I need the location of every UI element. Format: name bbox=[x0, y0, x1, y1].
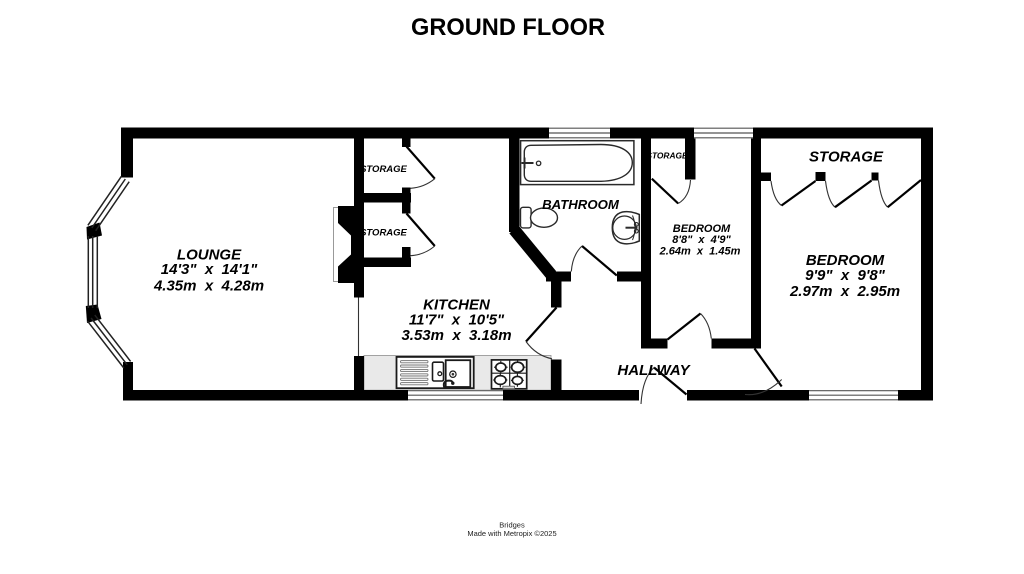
svg-text:BATHROOM: BATHROOM bbox=[542, 197, 620, 212]
svg-text:4.35m x 4.28m: 4.35m x 4.28m bbox=[153, 277, 264, 294]
svg-text:GROUND FLOOR: GROUND FLOOR bbox=[411, 15, 605, 41]
svg-text:3.53m x 3.18m: 3.53m x 3.18m bbox=[401, 327, 511, 344]
svg-text:HALLWAY: HALLWAY bbox=[617, 362, 691, 379]
svg-text:Made with Metropix ©2025: Made with Metropix ©2025 bbox=[467, 529, 556, 538]
svg-text:11'7" x 10'5": 11'7" x 10'5" bbox=[409, 311, 505, 328]
svg-text:8'8" x 4'9": 8'8" x 4'9" bbox=[672, 234, 731, 246]
svg-text:2.64m x 1.45m: 2.64m x 1.45m bbox=[659, 245, 741, 257]
svg-text:STORAGE: STORAGE bbox=[360, 227, 407, 238]
svg-text:14'3" x 14'1": 14'3" x 14'1" bbox=[161, 261, 258, 278]
svg-text:STORAGE: STORAGE bbox=[360, 164, 407, 175]
svg-text:STORAGE: STORAGE bbox=[809, 149, 884, 166]
svg-text:STORAGE: STORAGE bbox=[646, 150, 688, 160]
svg-text:2.97m x 2.95m: 2.97m x 2.95m bbox=[789, 283, 900, 300]
svg-text:9'9" x 9'8": 9'9" x 9'8" bbox=[805, 267, 886, 284]
